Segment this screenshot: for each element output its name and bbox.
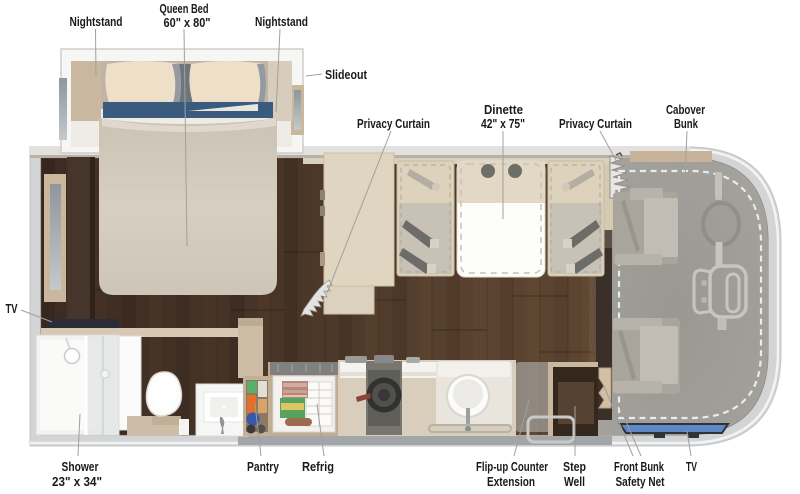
svg-text:TV: TV (686, 459, 697, 474)
svg-text:Dinette: Dinette (484, 102, 523, 117)
svg-text:60" x 80": 60" x 80" (164, 15, 211, 30)
svg-text:Well: Well (564, 474, 585, 489)
svg-text:Shower: Shower (62, 459, 99, 474)
svg-text:Privacy Curtain: Privacy Curtain (559, 116, 632, 131)
svg-text:Refrig: Refrig (302, 459, 334, 474)
svg-text:Nightstand: Nightstand (255, 14, 308, 29)
svg-text:Slideout: Slideout (325, 67, 368, 82)
svg-text:Privacy Curtain: Privacy Curtain (357, 116, 430, 131)
svg-text:Safety Net: Safety Net (616, 474, 666, 489)
svg-text:42" x 75": 42" x 75" (481, 116, 525, 131)
svg-text:TV: TV (6, 301, 18, 316)
svg-text:Pantry: Pantry (247, 459, 280, 474)
svg-text:Flip-up Counter: Flip-up Counter (476, 459, 548, 474)
svg-text:Cabover: Cabover (666, 102, 705, 117)
svg-text:Extension: Extension (487, 474, 535, 489)
svg-text:23" x 34": 23" x 34" (52, 474, 102, 489)
svg-text:Nightstand: Nightstand (70, 14, 123, 29)
svg-text:Bunk: Bunk (674, 116, 699, 131)
svg-text:Step: Step (563, 459, 586, 474)
svg-text:Queen Bed: Queen Bed (160, 1, 209, 16)
svg-text:Front Bunk: Front Bunk (614, 459, 665, 474)
